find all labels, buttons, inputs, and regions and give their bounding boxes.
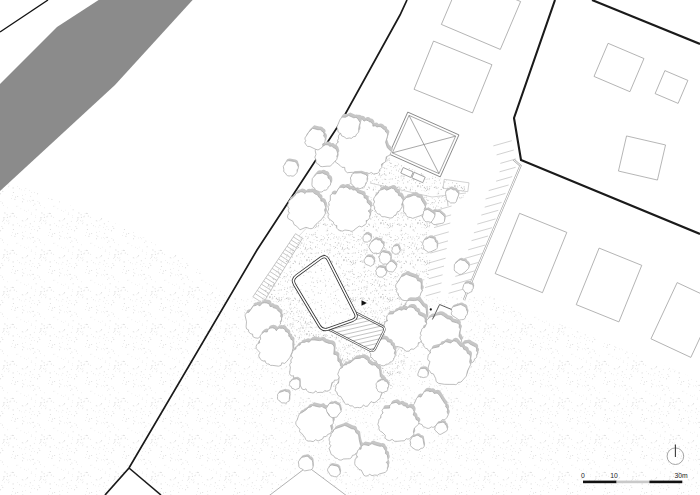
- svg-text:30m: 30m: [674, 472, 688, 479]
- svg-text:0: 0: [581, 472, 585, 479]
- svg-text:10: 10: [610, 472, 618, 479]
